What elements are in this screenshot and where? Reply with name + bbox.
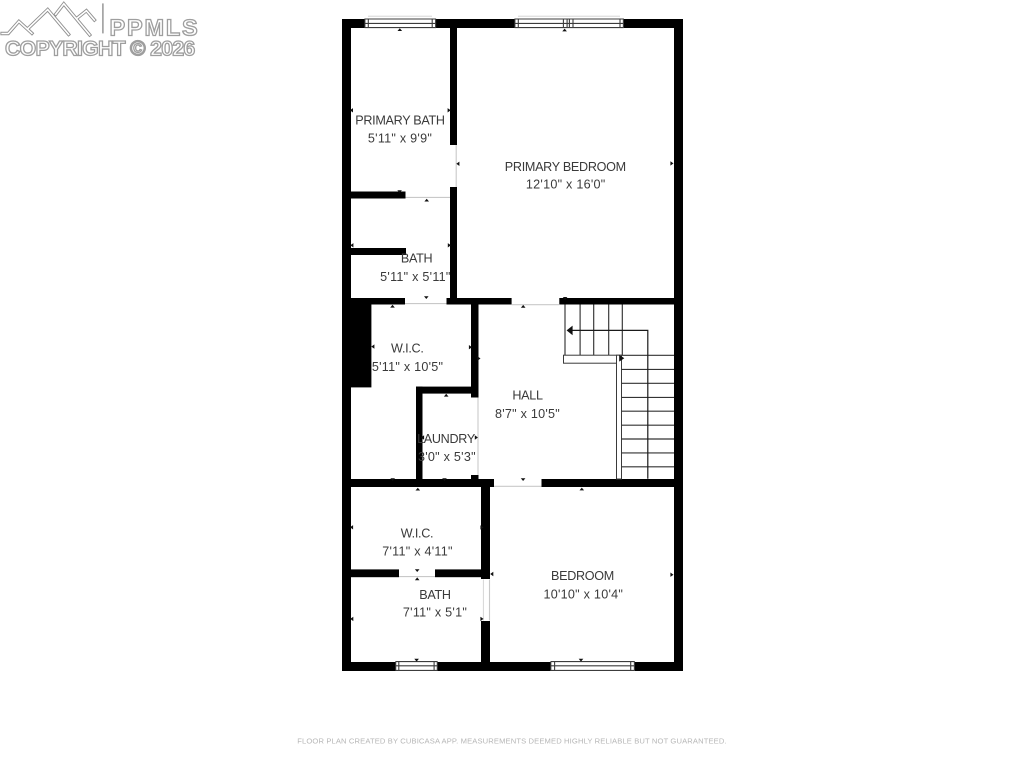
svg-text:5'11" x 10'5": 5'11" x 10'5" (372, 360, 443, 374)
svg-text:BEDROOM: BEDROOM (551, 569, 614, 583)
svg-text:PRIMARY BATH: PRIMARY BATH (355, 113, 445, 127)
svg-text:LAUNDRY: LAUNDRY (417, 432, 476, 446)
svg-text:BATH: BATH (401, 251, 433, 265)
svg-text:BATH: BATH (419, 588, 451, 602)
svg-text:3'0" x 5'3": 3'0" x 5'3" (418, 450, 476, 464)
svg-text:5'11" x 9'9": 5'11" x 9'9" (368, 132, 432, 146)
svg-text:8'7" x 10'5": 8'7" x 10'5" (495, 407, 560, 421)
svg-text:10'10" x 10'4": 10'10" x 10'4" (544, 587, 624, 601)
svg-text:5'11" x 5'11": 5'11" x 5'11" (380, 270, 450, 284)
svg-text:COPYRIGHT © 2026: COPYRIGHT © 2026 (5, 37, 195, 61)
svg-text:W.I.C.: W.I.C. (401, 527, 433, 541)
svg-text:12'10" x 16'0": 12'10" x 16'0" (526, 178, 606, 192)
svg-text:7'11" x 4'11": 7'11" x 4'11" (382, 545, 452, 559)
svg-text:PRIMARY BEDROOM: PRIMARY BEDROOM (505, 160, 626, 174)
svg-text:W.I.C.: W.I.C. (391, 342, 423, 356)
svg-text:FLOOR PLAN CREATED BY CUBICASA: FLOOR PLAN CREATED BY CUBICASA APP. MEAS… (297, 737, 726, 746)
svg-text:7'11" x 5'1": 7'11" x 5'1" (403, 606, 467, 620)
svg-text:HALL: HALL (512, 389, 543, 403)
